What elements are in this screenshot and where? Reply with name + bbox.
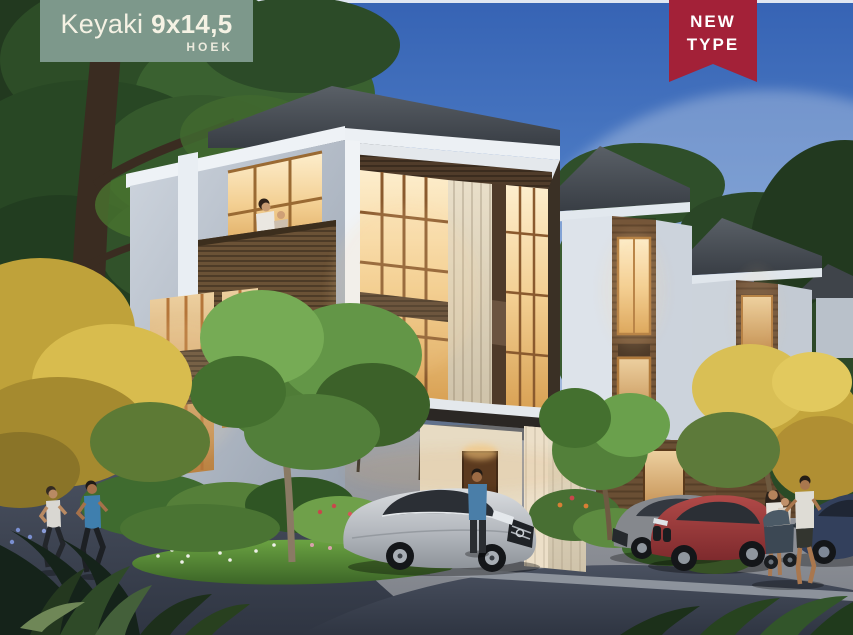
badge-dimensions: 9x14,5: [151, 9, 232, 39]
ribbon-line1: NEW: [669, 10, 757, 33]
house-render-scene: [0, 0, 853, 635]
ribbon-line2: TYPE: [669, 33, 757, 56]
car-silver: [343, 488, 540, 576]
promo-hero-image: Keyaki 9x14,5 HOEK NEW TYPE: [0, 0, 853, 635]
badge-variant-label: HOEK: [60, 40, 233, 54]
badge-title: Keyaki 9x14,5: [60, 10, 233, 39]
product-badge: Keyaki 9x14,5 HOEK: [40, 0, 253, 62]
badge-product-name: Keyaki: [61, 9, 144, 39]
